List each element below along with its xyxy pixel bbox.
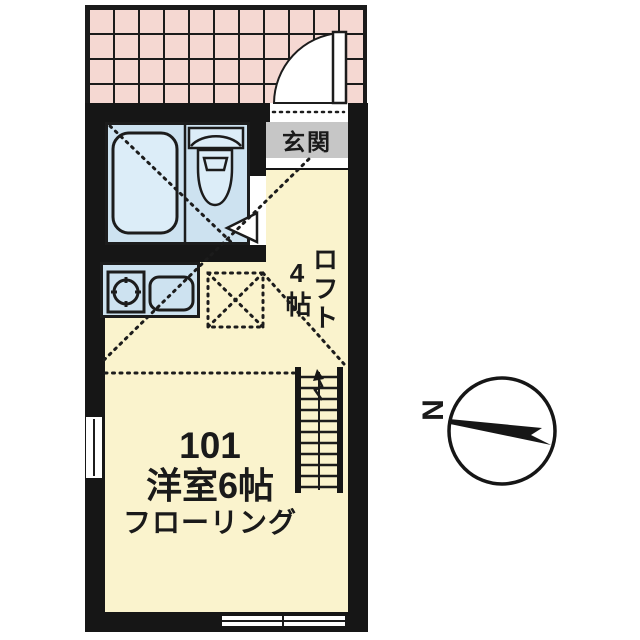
burner-icon [108,272,144,312]
room-label: 101 洋室6帖 フローリング [95,425,325,538]
loft-hatch-icon [208,273,263,327]
toilet-icon [189,128,243,205]
north-label: N [417,399,451,421]
bath-door-swing [227,213,257,242]
unit-number: 101 [179,425,241,466]
entrance-door-icon [333,32,346,103]
compass-icon [449,378,555,484]
floor-plan: 玄関 [0,0,640,640]
room-type: 洋室6帖 [146,466,274,506]
flooring-label: フローリング [123,507,297,538]
bathtub-icon [113,133,177,233]
loft-size-label: 4帖 [284,258,310,320]
kitchen-sink-icon [150,277,193,310]
loft-label: ロフト [311,246,337,333]
